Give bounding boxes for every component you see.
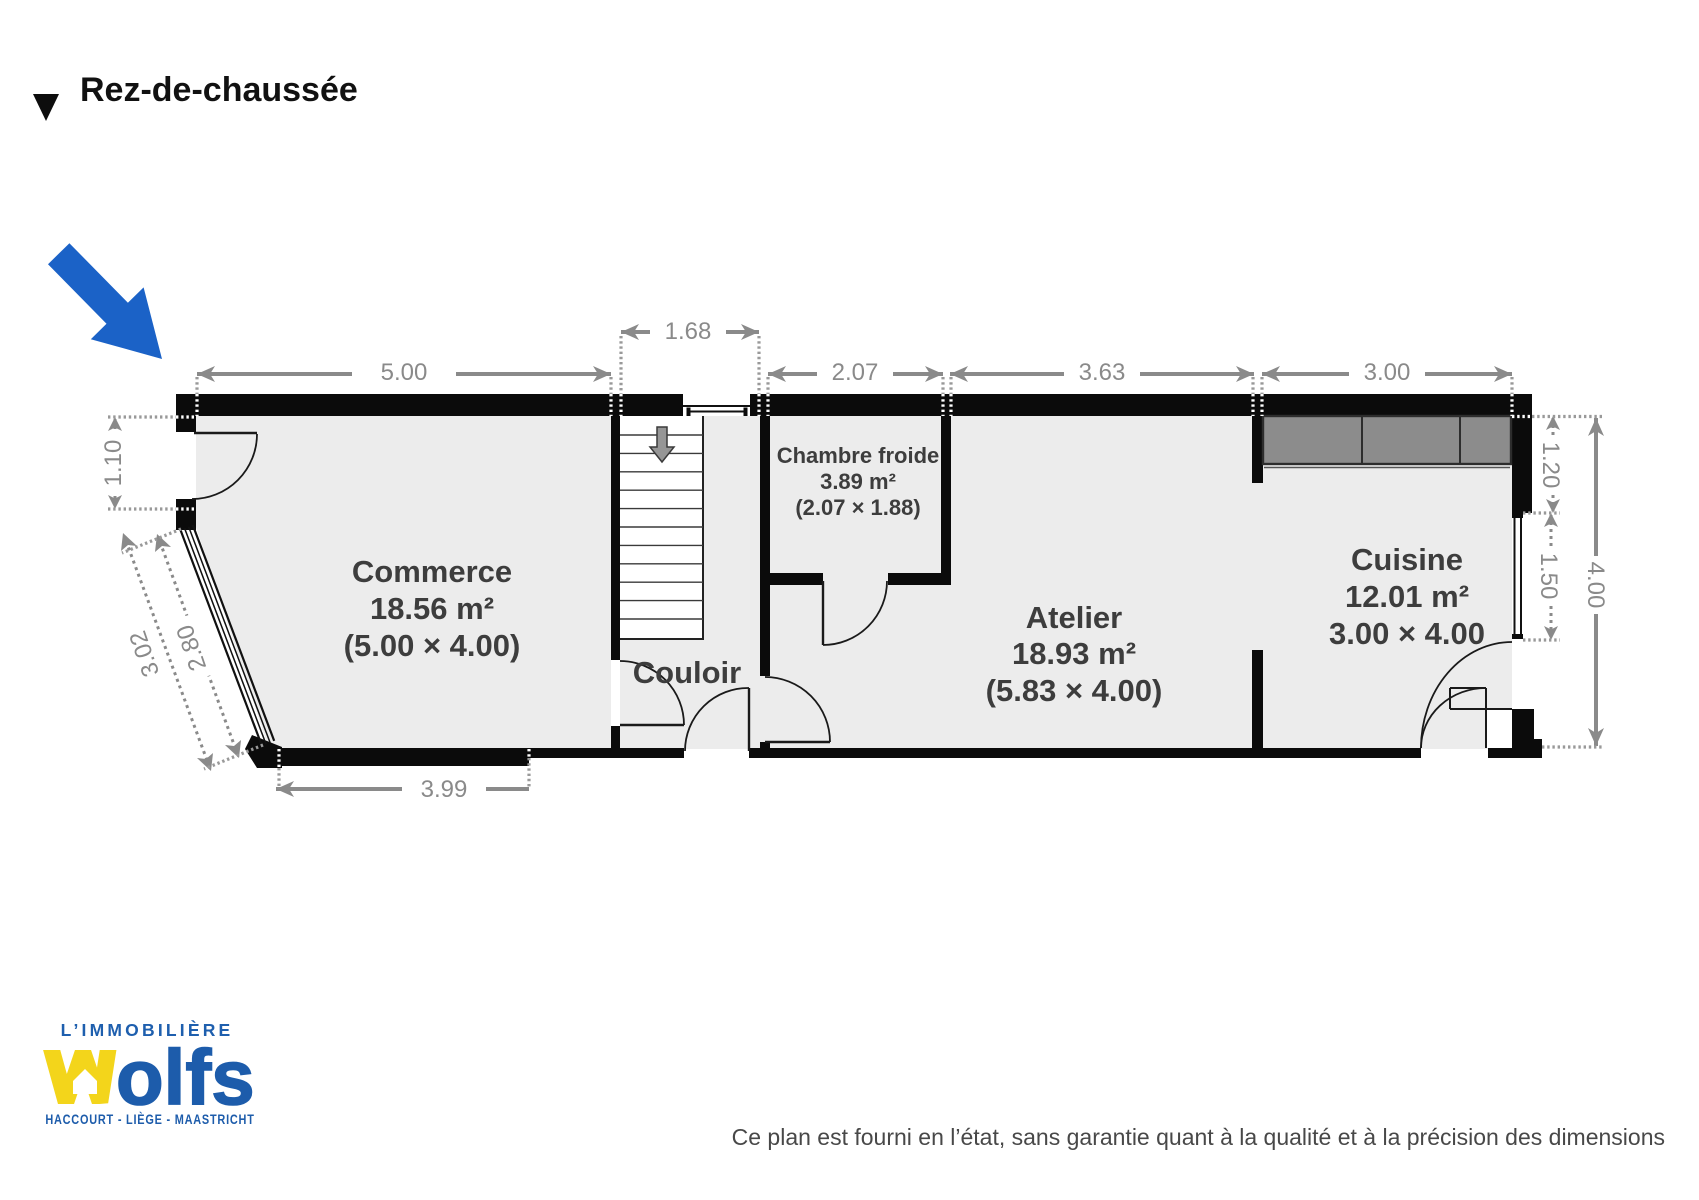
svg-text:(2.07 × 1.88): (2.07 × 1.88) <box>795 495 920 520</box>
svg-text:(5.83 × 4.00): (5.83 × 4.00) <box>986 673 1163 708</box>
svg-text:18.93 m²: 18.93 m² <box>1012 636 1136 671</box>
svg-text:Commerce: Commerce <box>352 554 512 589</box>
svg-text:1.20: 1.20 <box>1537 442 1564 489</box>
svg-text:18.56 m²: 18.56 m² <box>370 591 494 626</box>
svg-text:Chambre froide: Chambre froide <box>777 443 940 468</box>
svg-text:4.00: 4.00 <box>1582 562 1609 609</box>
svg-text:3.02: 3.02 <box>124 627 165 680</box>
svg-text:3.89 m²: 3.89 m² <box>820 469 896 494</box>
svg-text:HACCOURT - LIÈGE - MAASTRICHT: HACCOURT - LIÈGE - MAASTRICHT <box>45 1111 254 1128</box>
svg-text:Rez-de-chaussée: Rez-de-chaussée <box>80 71 358 109</box>
svg-text:3.63: 3.63 <box>1079 359 1126 386</box>
svg-text:3.99: 3.99 <box>421 776 468 803</box>
svg-text:Ce plan est fourni en l’état,: Ce plan est fourni en l’état, sans garan… <box>732 1124 1665 1150</box>
svg-text:Atelier: Atelier <box>1026 600 1122 635</box>
svg-text:(5.00 × 4.00): (5.00 × 4.00) <box>344 628 521 663</box>
svg-text:1.68: 1.68 <box>665 318 712 345</box>
svg-text:1.50: 1.50 <box>1535 553 1562 600</box>
svg-text:2.80: 2.80 <box>171 621 212 674</box>
svg-text:3.00 × 4.00: 3.00 × 4.00 <box>1329 616 1485 651</box>
svg-text:3.00: 3.00 <box>1364 359 1411 386</box>
svg-text:1.10: 1.10 <box>100 440 127 487</box>
svg-text:12.01 m²: 12.01 m² <box>1345 579 1469 614</box>
svg-text:Cuisine: Cuisine <box>1351 542 1463 577</box>
svg-text:5.00: 5.00 <box>381 359 428 386</box>
svg-text:Couloir: Couloir <box>633 655 742 690</box>
svg-text:olfs: olfs <box>116 1033 255 1121</box>
svg-text:2.07: 2.07 <box>832 359 879 386</box>
